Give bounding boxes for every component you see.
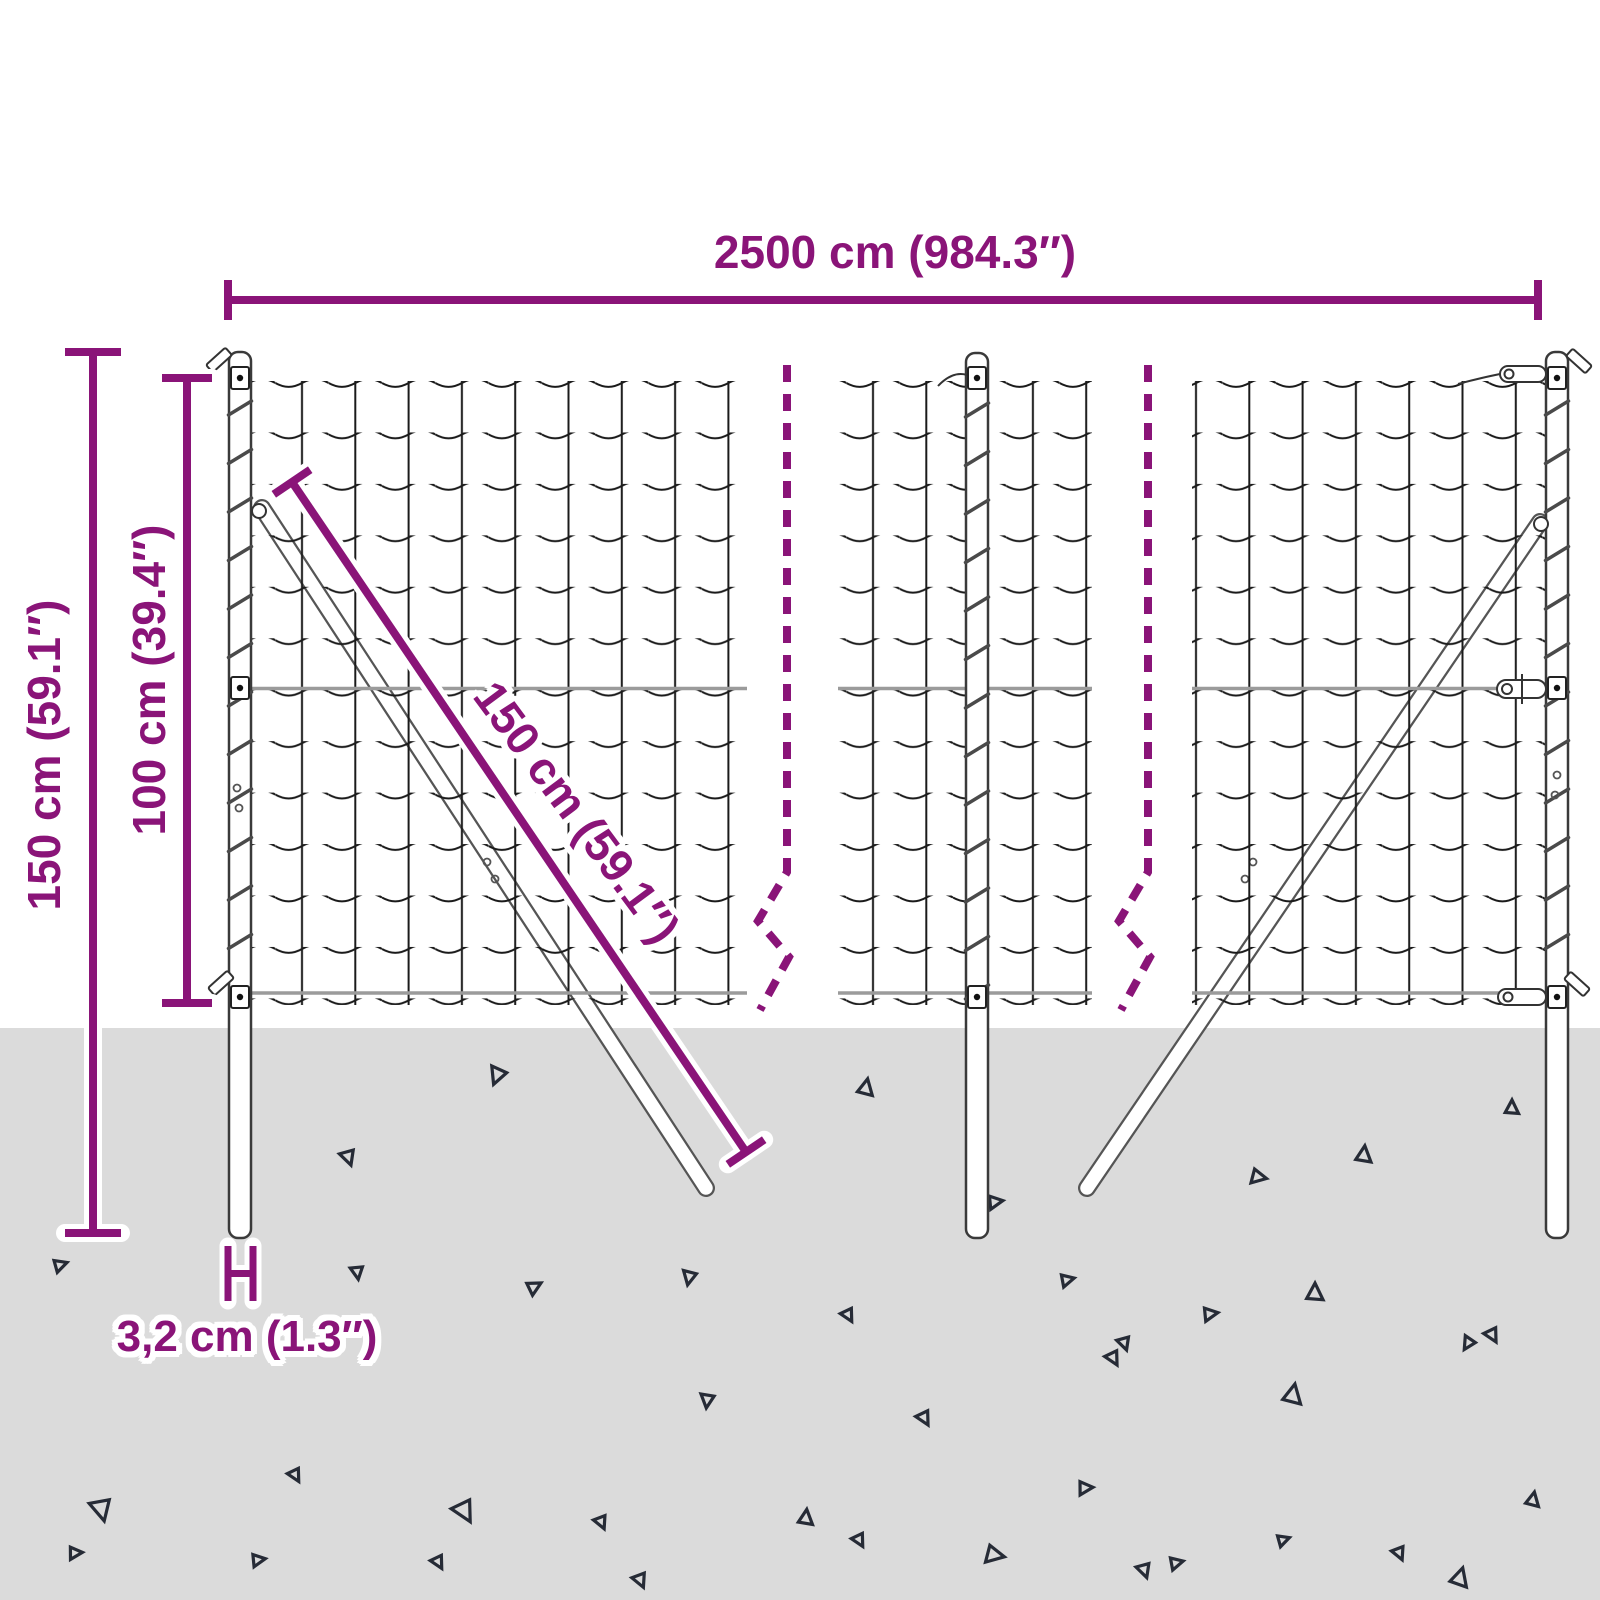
post-width-dimension-label: 3,2 cm (1.3″) bbox=[117, 1312, 378, 1362]
width-dimension-label: 2500 cm (984.3″) bbox=[714, 225, 1076, 279]
mesh-height-dimension-label: 100 cm (39.4″) bbox=[122, 525, 176, 836]
fence-dimension-diagram: 2500 cm (984.3″) 150 cm (59.1″) 100 cm (… bbox=[0, 0, 1600, 1600]
total-height-dimension-label: 150 cm (59.1″) bbox=[17, 600, 71, 911]
middle-post bbox=[966, 353, 988, 1238]
